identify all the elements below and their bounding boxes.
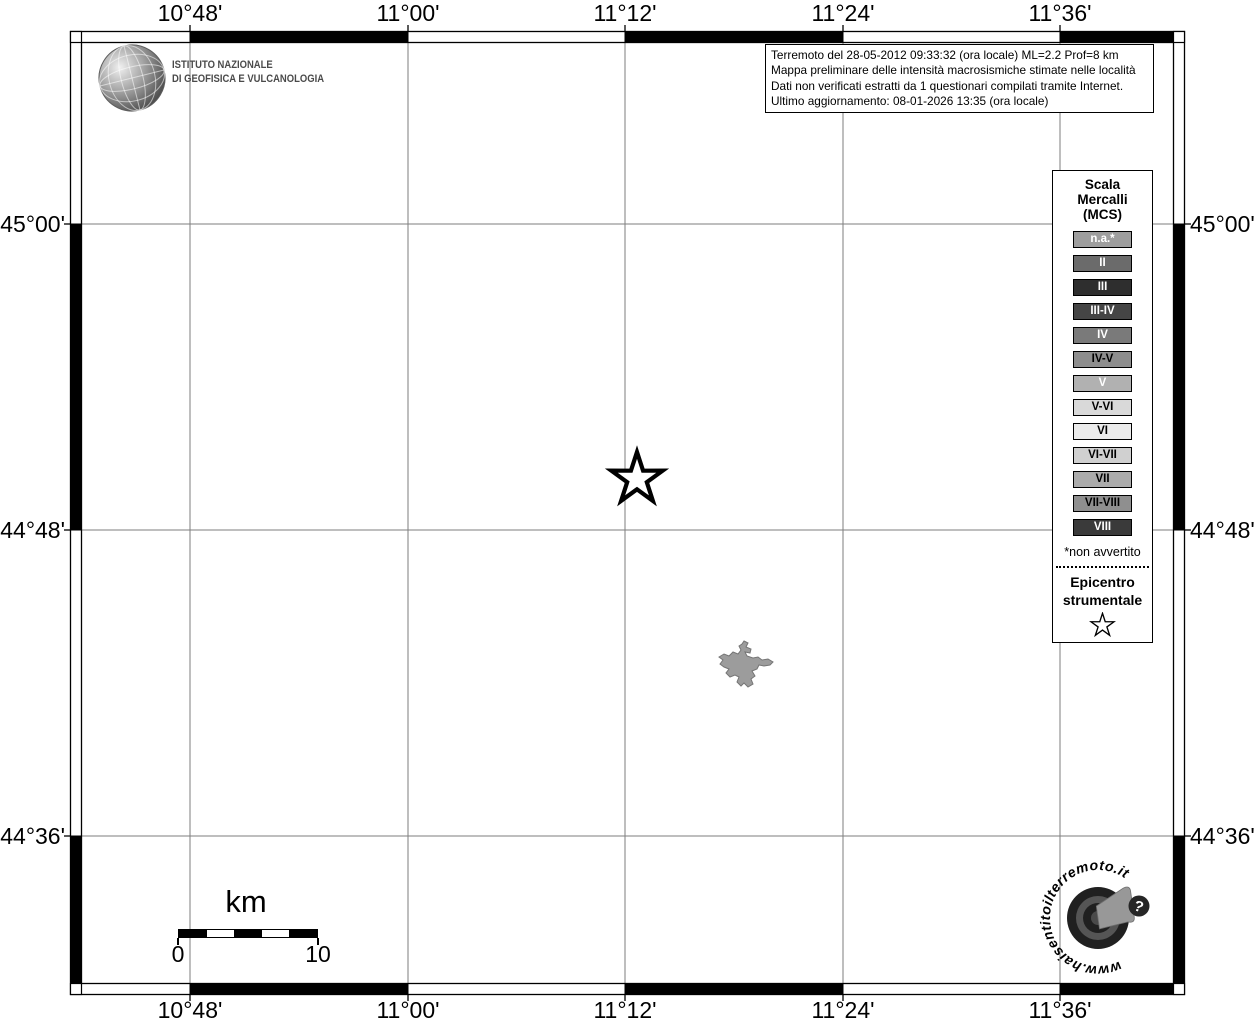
scalebar-segment	[289, 930, 317, 937]
scalebar-start-label: 0	[172, 941, 185, 968]
legend-intensity-chip: IV	[1073, 327, 1132, 344]
scalebar	[178, 929, 318, 938]
lat-label: 44°48'	[0, 518, 65, 542]
ingv-logo-line1: ISTITUTO NAZIONALE	[172, 59, 324, 73]
lat-label: 44°36'	[0, 824, 65, 848]
legend-star-icon	[1089, 612, 1116, 639]
event-info-line1: Terremoto del 28-05-2012 09:33:32 (ora l…	[771, 48, 1148, 63]
legend-intensity-chip: VI	[1073, 423, 1132, 440]
lon-label: 11°00'	[376, 1, 439, 25]
legend-intensity-chip: II	[1073, 255, 1132, 272]
epicenter-star-icon	[611, 452, 662, 501]
legend-epicenter-label: Epicentro strumentale	[1053, 573, 1152, 609]
legend-intensity-chip: VII-VIII	[1073, 495, 1132, 512]
legend-intensity-chip: V-VI	[1073, 399, 1132, 416]
lon-label: 11°36'	[1028, 1, 1091, 25]
legend-title: Scala Mercalli (MCS)	[1053, 171, 1152, 222]
ingv-globe-icon	[92, 38, 172, 118]
legend-epicenter-line1: Epicentro	[1053, 573, 1152, 591]
legend-intensity-chip: VI-VII	[1073, 447, 1132, 464]
locality-intensity-polygon	[719, 641, 773, 687]
legend-intensity-chip: n.a.*	[1073, 231, 1132, 248]
ingv-logo-text: ISTITUTO NAZIONALE DI GEOFISICA E VULCAN…	[172, 59, 324, 86]
event-info-line3: Dati non verificati estratti da 1 questi…	[771, 79, 1148, 94]
lon-label: 11°12'	[593, 998, 656, 1022]
legend-intensity-chip: III	[1073, 279, 1132, 296]
lon-label: 11°24'	[811, 998, 874, 1022]
lon-label: 11°00'	[376, 998, 439, 1022]
lon-label: 10°48'	[158, 1, 223, 25]
lon-label: 11°12'	[593, 1, 656, 25]
map-frame-lines	[64, 25, 1191, 1001]
event-info-line4: Ultimo aggiornamento: 08-01-2026 13:35 (…	[771, 94, 1148, 109]
lon-label: 11°36'	[1028, 998, 1091, 1022]
scalebar-segment	[262, 930, 290, 937]
mercalli-legend: Scala Mercalli (MCS) n.a.* II III III-IV…	[1052, 170, 1153, 643]
legend-title-line2: Mercalli	[1053, 192, 1152, 207]
event-info-line2: Mappa preliminare delle intensità macros…	[771, 63, 1148, 78]
map-frame-bands	[70, 31, 1185, 995]
scalebar-segment	[179, 930, 207, 937]
ingv-logo-line2: DI GEOFISICA E VULCANOLOGIA	[172, 73, 324, 87]
lat-label: 44°48'	[1190, 518, 1255, 542]
legend-footnote: *non avvertito	[1053, 545, 1152, 559]
legend-title-line1: Scala	[1053, 177, 1152, 192]
legend-intensity-chip: VIII	[1073, 519, 1132, 536]
map-page: ? www.haisentitoilterremoto.it 10°48' 11…	[0, 0, 1255, 1024]
lat-label: 44°36'	[1190, 824, 1255, 848]
legend-intensity-chip: III-IV	[1073, 303, 1132, 320]
legend-divider	[1056, 566, 1149, 568]
legend-epicenter-line2: strumentale	[1053, 591, 1152, 609]
scalebar-segment	[207, 930, 235, 937]
legend-intensity-chip: VII	[1073, 471, 1132, 488]
legend-intensity-chip: IV-V	[1073, 351, 1132, 368]
legend-intensity-chip: V	[1073, 375, 1132, 392]
scalebar-unit-label: km	[225, 884, 266, 920]
lon-label: 11°24'	[811, 1, 874, 25]
scalebar-segment	[234, 930, 262, 937]
legend-title-line3: (MCS)	[1053, 207, 1152, 222]
scalebar-end-label: 10	[305, 941, 331, 968]
lat-label: 45°00'	[1190, 212, 1255, 236]
lat-label: 45°00'	[0, 212, 65, 236]
lon-label: 10°48'	[158, 998, 223, 1022]
graticule	[81, 42, 1174, 984]
haisentito-logo: ? www.haisentitoilterremoto.it	[1037, 857, 1150, 980]
event-info-box: Terremoto del 28-05-2012 09:33:32 (ora l…	[765, 44, 1154, 113]
